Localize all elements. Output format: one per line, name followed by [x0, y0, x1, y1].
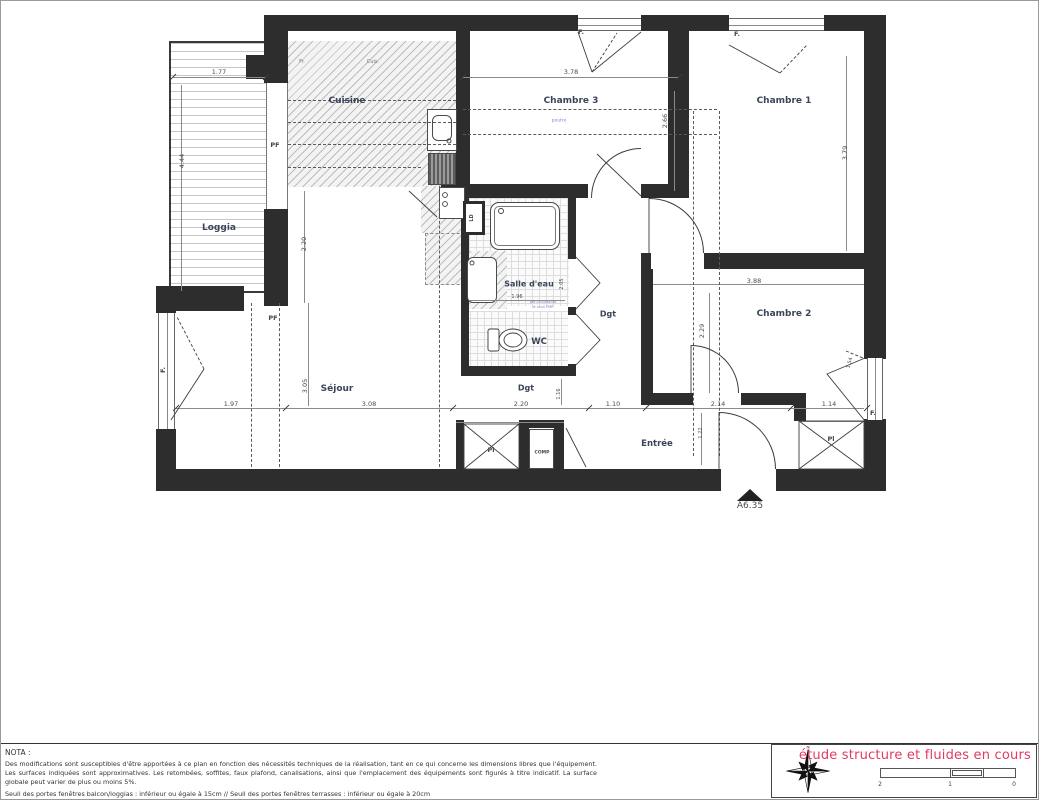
dim-3-78: 3.78 [564, 68, 578, 76]
toilet-tank [488, 329, 499, 351]
dim-1-97: 1.97 [224, 400, 238, 408]
dim-3-88: 3.88 [747, 277, 761, 285]
chambre3-door-leaf [597, 154, 641, 196]
floor-plan-page: LoggiaCuisineChambre 3Chambre 1SéjourSal… [0, 0, 1039, 800]
kitchen-faucet [447, 139, 451, 143]
scale-bar-cell [951, 769, 984, 777]
oven-knob-1 [443, 193, 448, 198]
label-f-sejour: F. [159, 367, 167, 373]
scale-bar-cell [984, 769, 1015, 777]
nota-block: NOTA : Des modifications sont susceptibl… [5, 748, 597, 798]
toilet-bowl [499, 329, 527, 351]
scale-bar-cell [881, 769, 951, 777]
dim-1-96: 1.96 [511, 294, 522, 300]
scale-tick-1: 1 [948, 781, 952, 788]
dim-ticks-top [170, 74, 682, 80]
label-fr: Fr. [299, 59, 305, 65]
oven-knob-2 [443, 202, 448, 207]
label-pf-1: PF [270, 141, 279, 149]
room-label-sejour: Séjour [321, 384, 354, 394]
room-label-entree: Entrée [641, 439, 673, 449]
room-label-cuisine: Cuisine [328, 96, 365, 106]
dim-2-05: 2.05 [559, 278, 565, 289]
label-f-chambre1: F. [734, 30, 740, 38]
dim-3-05: 3.05 [301, 379, 309, 393]
dim-2-14: 2.14 [711, 400, 725, 408]
room-label-dgt-1: Dgt [518, 384, 534, 393]
dim-2-20: 2.20 [514, 400, 528, 408]
chambre1-window-swing-dash [780, 45, 807, 73]
label-cuis: Cuis. [367, 59, 379, 65]
label-f-chambre3: F. [578, 28, 584, 36]
salle-deau-door [576, 257, 600, 309]
dim-2-29: 2.29 [698, 324, 706, 338]
room-label-wc: WC [531, 337, 547, 347]
room-label-chambre3: Chambre 3 [544, 96, 599, 106]
comp-door-line [566, 428, 586, 467]
dim-1-14: 1.14 [822, 400, 836, 408]
title-strip: NOTA : Des modifications sont susceptibl… [1, 743, 1039, 800]
nota-seuil: Seuil des portes fenêtres balcon/loggias… [5, 790, 597, 798]
room-label-loggia: Loggia [202, 223, 236, 233]
label-f-chambre2: F. [870, 409, 876, 417]
label-comp: COMP [535, 451, 550, 456]
room-label-dgt-2: Dgt [600, 310, 616, 319]
vanity-faucet [470, 261, 474, 265]
bath-drain [499, 209, 504, 214]
label-porte-note-1: pte coulissante [530, 300, 557, 304]
room-label-chambre1: Chambre 1 [757, 96, 812, 106]
label-ld: LD [469, 214, 475, 221]
dim-3-79: 3.79 [841, 146, 849, 160]
dim-1-10: 1.10 [606, 400, 620, 408]
entry-marker-triangle [737, 489, 763, 501]
nota-title: NOTA : [5, 748, 597, 757]
label-porte-note-2: et seuil PMR [532, 305, 553, 309]
status-text: étude structure et fluides en cours [799, 748, 1031, 763]
label-pl-2: Pl [828, 435, 835, 443]
dim-4-44: 4.44 [178, 154, 186, 168]
sejour-window-swing [171, 369, 204, 420]
room-label-chambre2: Chambre 2 [757, 309, 812, 319]
title-block-panel: N étude structure et fluides en cours 2 … [771, 744, 1037, 798]
dim-2-20-cuisine: 2.20 [300, 237, 308, 251]
dim-1-16: 1.16 [556, 388, 562, 399]
label-pl-1: Pl [488, 446, 495, 454]
sejour-window-swing-dash [177, 317, 204, 369]
wc-door [576, 314, 600, 365]
room-label-salle-deau: Salle d'eau [504, 280, 554, 289]
label-poutre: poutre [552, 119, 567, 124]
dim-1-77: 1.77 [212, 68, 226, 76]
chambre3-window-swing [578, 32, 641, 72]
dim-1-22: 1.22 [698, 427, 704, 438]
nota-body: Des modifications sont susceptibles d'êt… [5, 760, 597, 787]
scale-tick-2: 2 [878, 781, 882, 788]
plan-linework [1, 1, 1039, 741]
chambre3-window-swing-dash [592, 33, 617, 72]
dim-2-66: 2.66 [661, 114, 669, 128]
scale-bar [880, 768, 1016, 778]
label-apartment-ref: A6.35 [737, 501, 763, 511]
kitchen-door-line [409, 191, 437, 217]
scale-tick-0: 0 [1012, 781, 1016, 788]
dim-3-08: 3.08 [362, 400, 376, 408]
label-pf-2: PF [268, 314, 277, 322]
chambre1-window-swing [729, 45, 780, 73]
placard2-cross [799, 421, 864, 469]
